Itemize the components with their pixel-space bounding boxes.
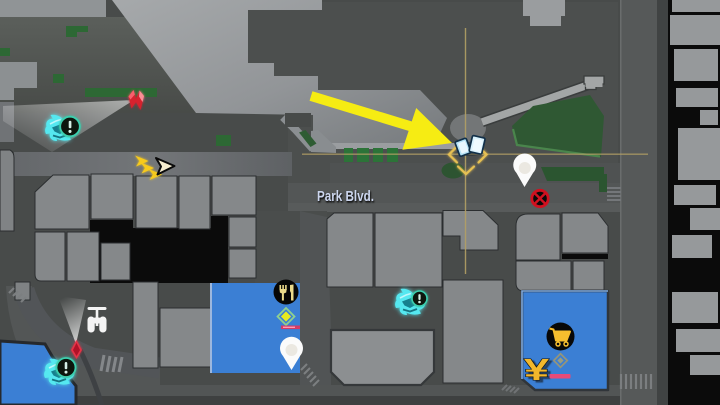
svg-text:¥: ¥ xyxy=(524,352,550,387)
svg-text:Park Blvd.: Park Blvd. xyxy=(317,188,374,205)
